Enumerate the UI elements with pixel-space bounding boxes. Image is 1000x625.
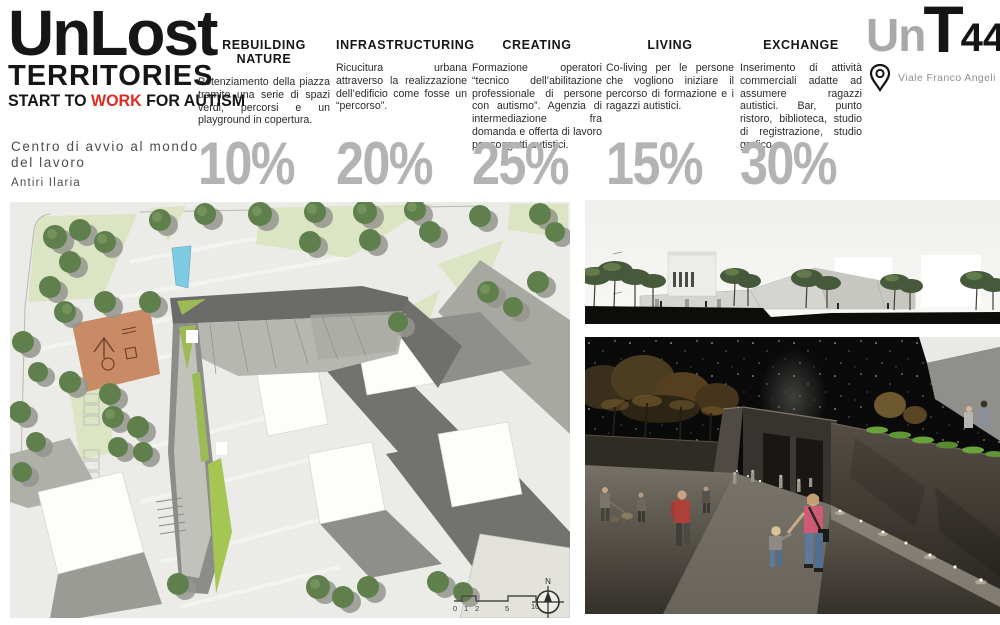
brand-part-black: T — [923, 6, 963, 54]
column-exchange: EXCHANGE Inserimento di attività commerc… — [740, 38, 862, 152]
column-title: INFRASTRUCTURING — [336, 38, 467, 52]
column-body: Co-living per le persone che vogliono in… — [606, 62, 734, 113]
tagline-start: START TO — [8, 92, 91, 110]
column-body: Potenziamento della piazza tramite una s… — [198, 76, 330, 127]
project-author: Antiri Ilaria — [11, 177, 81, 189]
project-subtitle: Centro di avvio al mondo del lavoro — [11, 139, 216, 171]
tagline-highlight: WORK — [91, 92, 142, 110]
column-percent: 10% — [198, 134, 294, 194]
scale-label: 0 — [453, 604, 457, 613]
elevation-render — [585, 200, 1000, 324]
project-logo: UnLost TERRITORIES START TO WORK FOR AUT… — [8, 4, 218, 111]
column-title: EXCHANGE — [740, 38, 862, 52]
site-plan-drawing: 0 1 2 5 10 N — [10, 202, 570, 618]
column-title: LIVING — [606, 38, 734, 52]
column-title: CREATING — [472, 38, 602, 52]
scale-label: 2 — [475, 604, 479, 613]
north-label: N — [545, 577, 551, 586]
brand-address: Viale Franco Angeli — [898, 72, 996, 84]
column-percent: 20% — [336, 134, 432, 194]
logo-subtitle: TERRITORIES — [8, 61, 218, 91]
column-percent: 15% — [606, 134, 702, 194]
column-creating: CREATING Formazione operatori “tecnico d… — [472, 38, 602, 152]
night-render — [585, 337, 1000, 614]
scale-label: 1 — [464, 604, 468, 613]
location-pin-icon — [870, 64, 890, 92]
brand-address-row: Viale Franco Angeli — [870, 64, 996, 92]
column-body: Ricucitura urbana attraverso la realizza… — [336, 62, 467, 113]
brand-unt44: Un T 44 Viale Franco Angeli — [866, 6, 996, 92]
column-rebuilding-nature: REBUILDING NATURE Potenziamento della pi… — [198, 38, 330, 127]
column-living: LIVING Co-living per le persone che vogl… — [606, 38, 734, 113]
presentation-board: UnLost TERRITORIES START TO WORK FOR AUT… — [0, 0, 1000, 625]
column-percent: 30% — [740, 134, 836, 194]
brand-number: 44 — [961, 22, 1000, 54]
brand-wordmark: Un T 44 — [866, 6, 996, 54]
logo-tagline: START TO WORK FOR AUTISM — [8, 92, 212, 111]
column-percent: 25% — [472, 134, 568, 194]
scale-label: 5 — [505, 604, 509, 613]
brand-part-gray: Un — [866, 17, 925, 54]
logo-title: UnLost — [8, 4, 218, 63]
column-infrastructuring: INFRASTRUCTURING Ricucitura urbana attra… — [336, 38, 467, 113]
column-title: REBUILDING NATURE — [198, 38, 330, 66]
